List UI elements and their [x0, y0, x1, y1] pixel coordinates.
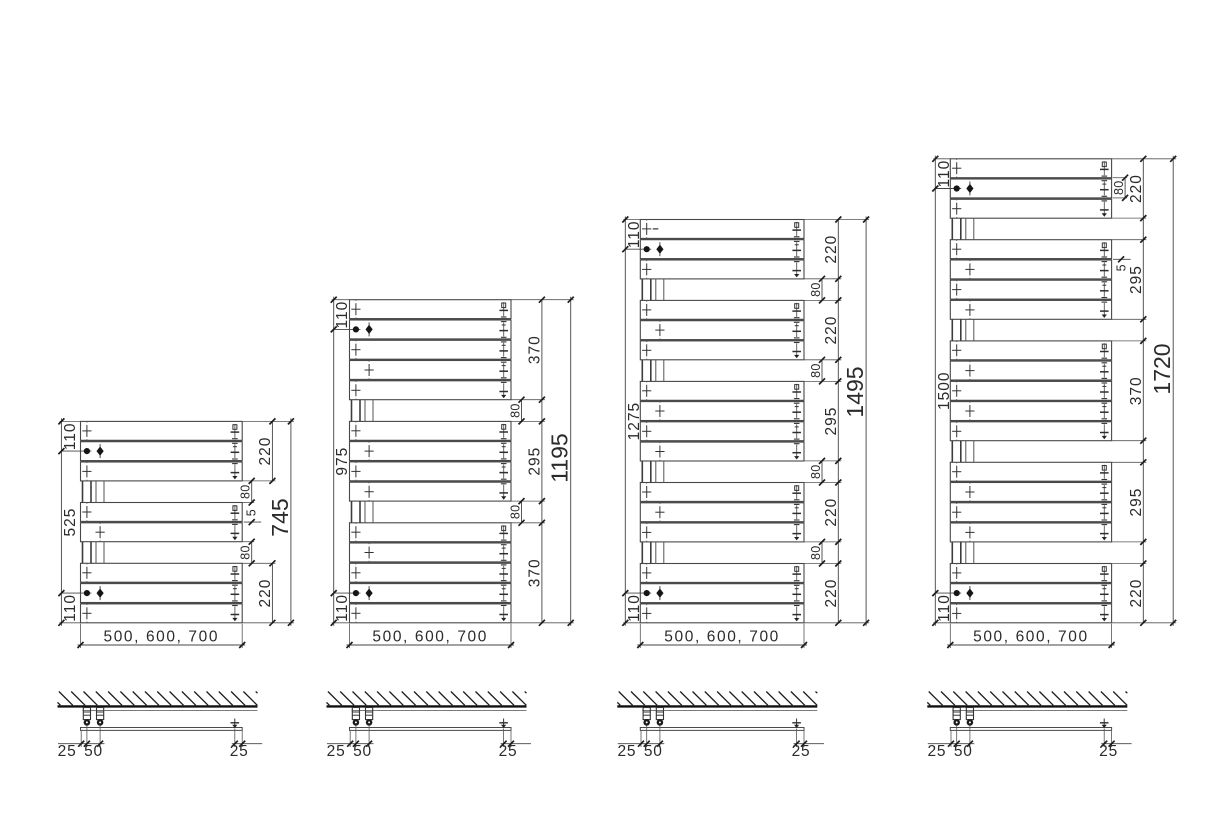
svg-text:80: 80	[809, 363, 823, 378]
svg-text:1275: 1275	[626, 402, 643, 440]
svg-text:50: 50	[644, 743, 663, 760]
svg-text:1720: 1720	[1149, 343, 1175, 394]
svg-text:80: 80	[239, 545, 253, 560]
svg-text:80: 80	[508, 403, 522, 418]
svg-text:220: 220	[257, 579, 274, 608]
svg-text:80: 80	[1112, 181, 1126, 196]
svg-text:25: 25	[327, 743, 346, 760]
svg-text:110: 110	[62, 422, 79, 450]
svg-text:80: 80	[809, 464, 823, 479]
svg-text:295: 295	[823, 407, 840, 436]
svg-text:295: 295	[526, 447, 543, 476]
svg-text:25: 25	[230, 743, 249, 760]
svg-text:500, 600, 700: 500, 600, 700	[103, 629, 219, 646]
svg-text:1195: 1195	[547, 433, 573, 482]
svg-text:220: 220	[823, 498, 840, 527]
svg-text:25: 25	[617, 743, 636, 760]
svg-text:500, 600, 700: 500, 600, 700	[973, 629, 1089, 646]
svg-text:110: 110	[936, 594, 953, 622]
svg-text:110: 110	[626, 220, 643, 248]
svg-text:370: 370	[526, 558, 543, 587]
svg-text:80: 80	[239, 484, 253, 499]
svg-text:220: 220	[1128, 579, 1145, 608]
svg-text:975: 975	[334, 447, 351, 476]
svg-text:110: 110	[626, 594, 643, 622]
svg-text:295: 295	[1128, 265, 1145, 294]
svg-text:110: 110	[62, 594, 79, 622]
svg-text:50: 50	[954, 743, 973, 760]
svg-text:110: 110	[334, 594, 351, 622]
svg-text:1500: 1500	[936, 372, 953, 410]
svg-text:1495: 1495	[842, 366, 868, 417]
svg-text:500, 600, 700: 500, 600, 700	[664, 629, 780, 646]
svg-text:745: 745	[267, 498, 293, 536]
svg-text:220: 220	[823, 235, 840, 264]
svg-text:110: 110	[334, 301, 351, 329]
svg-text:80: 80	[508, 505, 522, 520]
svg-text:220: 220	[257, 437, 274, 466]
svg-text:220: 220	[1128, 174, 1145, 203]
svg-text:370: 370	[1128, 376, 1145, 405]
svg-text:370: 370	[526, 335, 543, 364]
svg-text:220: 220	[823, 579, 840, 608]
svg-text:5: 5	[1115, 264, 1129, 271]
svg-text:295: 295	[1128, 488, 1145, 517]
svg-text:25: 25	[1099, 743, 1118, 760]
svg-text:25: 25	[499, 743, 518, 760]
svg-text:80: 80	[809, 282, 823, 297]
svg-text:25: 25	[58, 743, 77, 760]
svg-text:25: 25	[792, 743, 811, 760]
svg-text:220: 220	[823, 316, 840, 345]
svg-text:80: 80	[809, 545, 823, 560]
svg-text:25: 25	[927, 743, 946, 760]
svg-text:110: 110	[936, 160, 953, 188]
svg-text:500, 600, 700: 500, 600, 700	[372, 629, 488, 646]
svg-text:50: 50	[353, 743, 372, 760]
svg-text:5: 5	[245, 509, 259, 516]
svg-text:525: 525	[62, 508, 79, 537]
svg-text:50: 50	[84, 743, 103, 760]
